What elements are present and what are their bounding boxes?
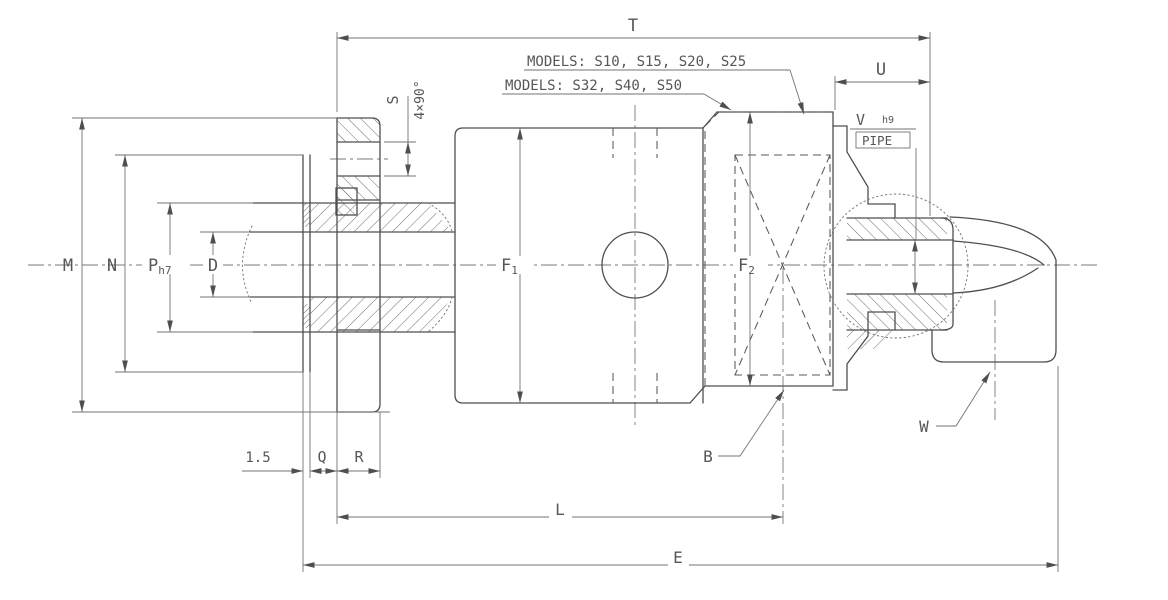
f2-letter: F [738,256,748,276]
dim-label-d: D [208,256,218,276]
elbow-outline [932,217,1056,362]
leader-w-callout [936,372,990,426]
bolt-pattern-note: 4×90° [413,80,428,119]
dim-label-e: E [673,548,683,567]
models-note-1: MODELS: S10, S15, S20, S25 [527,54,746,70]
dim-label-m: M [63,256,73,276]
part-outlines [250,112,1056,412]
f2-subscript: 2 [748,264,755,277]
key-hatch [336,188,357,215]
hidden-lines [613,112,831,403]
pipe-nipple-hatch-bottom [847,294,947,330]
elbow-bore-lower [953,268,1038,293]
dim-label-s: S [384,95,402,104]
leader-b-callout [718,390,784,456]
leader-models-a [790,70,804,114]
f1-letter: F [501,256,511,276]
technical-drawing: T U MODELS: S10, S15, S20, S25 MODELS: S… [0,0,1168,600]
p-tolerance: h7 [158,264,171,277]
dim-label-n: N [107,256,117,276]
dim-label-u: U [876,60,886,80]
pipe-nipple-hatch-top [847,218,947,240]
dim-label-r: R [354,448,364,466]
dim-label-q: Q [317,448,326,466]
seal-hatch-top [303,203,310,227]
dim-label-t: T [628,16,638,36]
dim-label-gap: 1.5 [245,450,270,466]
variant-body-dashed-outline [705,112,831,386]
rotor-collar-hatch-top [310,203,452,232]
leader-models-b [704,94,731,110]
dim-label-l: L [555,500,565,519]
p-letter: P [148,256,158,276]
nut-wedge-hatch [847,330,900,349]
f1-subscript: 1 [511,264,518,277]
v-tolerance: h9 [882,115,894,126]
flange-boss-hatch-upper [337,118,380,142]
main-body-outline [455,128,703,403]
rotor-collar-hatch-bottom [310,297,452,332]
models-note-2: MODELS: S32, S40, S50 [505,78,682,94]
pipe-label: PIPE [862,133,892,148]
seal-hatch-bottom [303,304,310,328]
drawing-canvas: T U MODELS: S10, S15, S20, S25 MODELS: S… [0,0,1168,600]
elbow-bore-upper [953,241,1044,265]
callout-label-w: W [919,417,929,436]
callout-label-b: B [703,447,713,466]
dim-label-v: V [856,111,865,129]
